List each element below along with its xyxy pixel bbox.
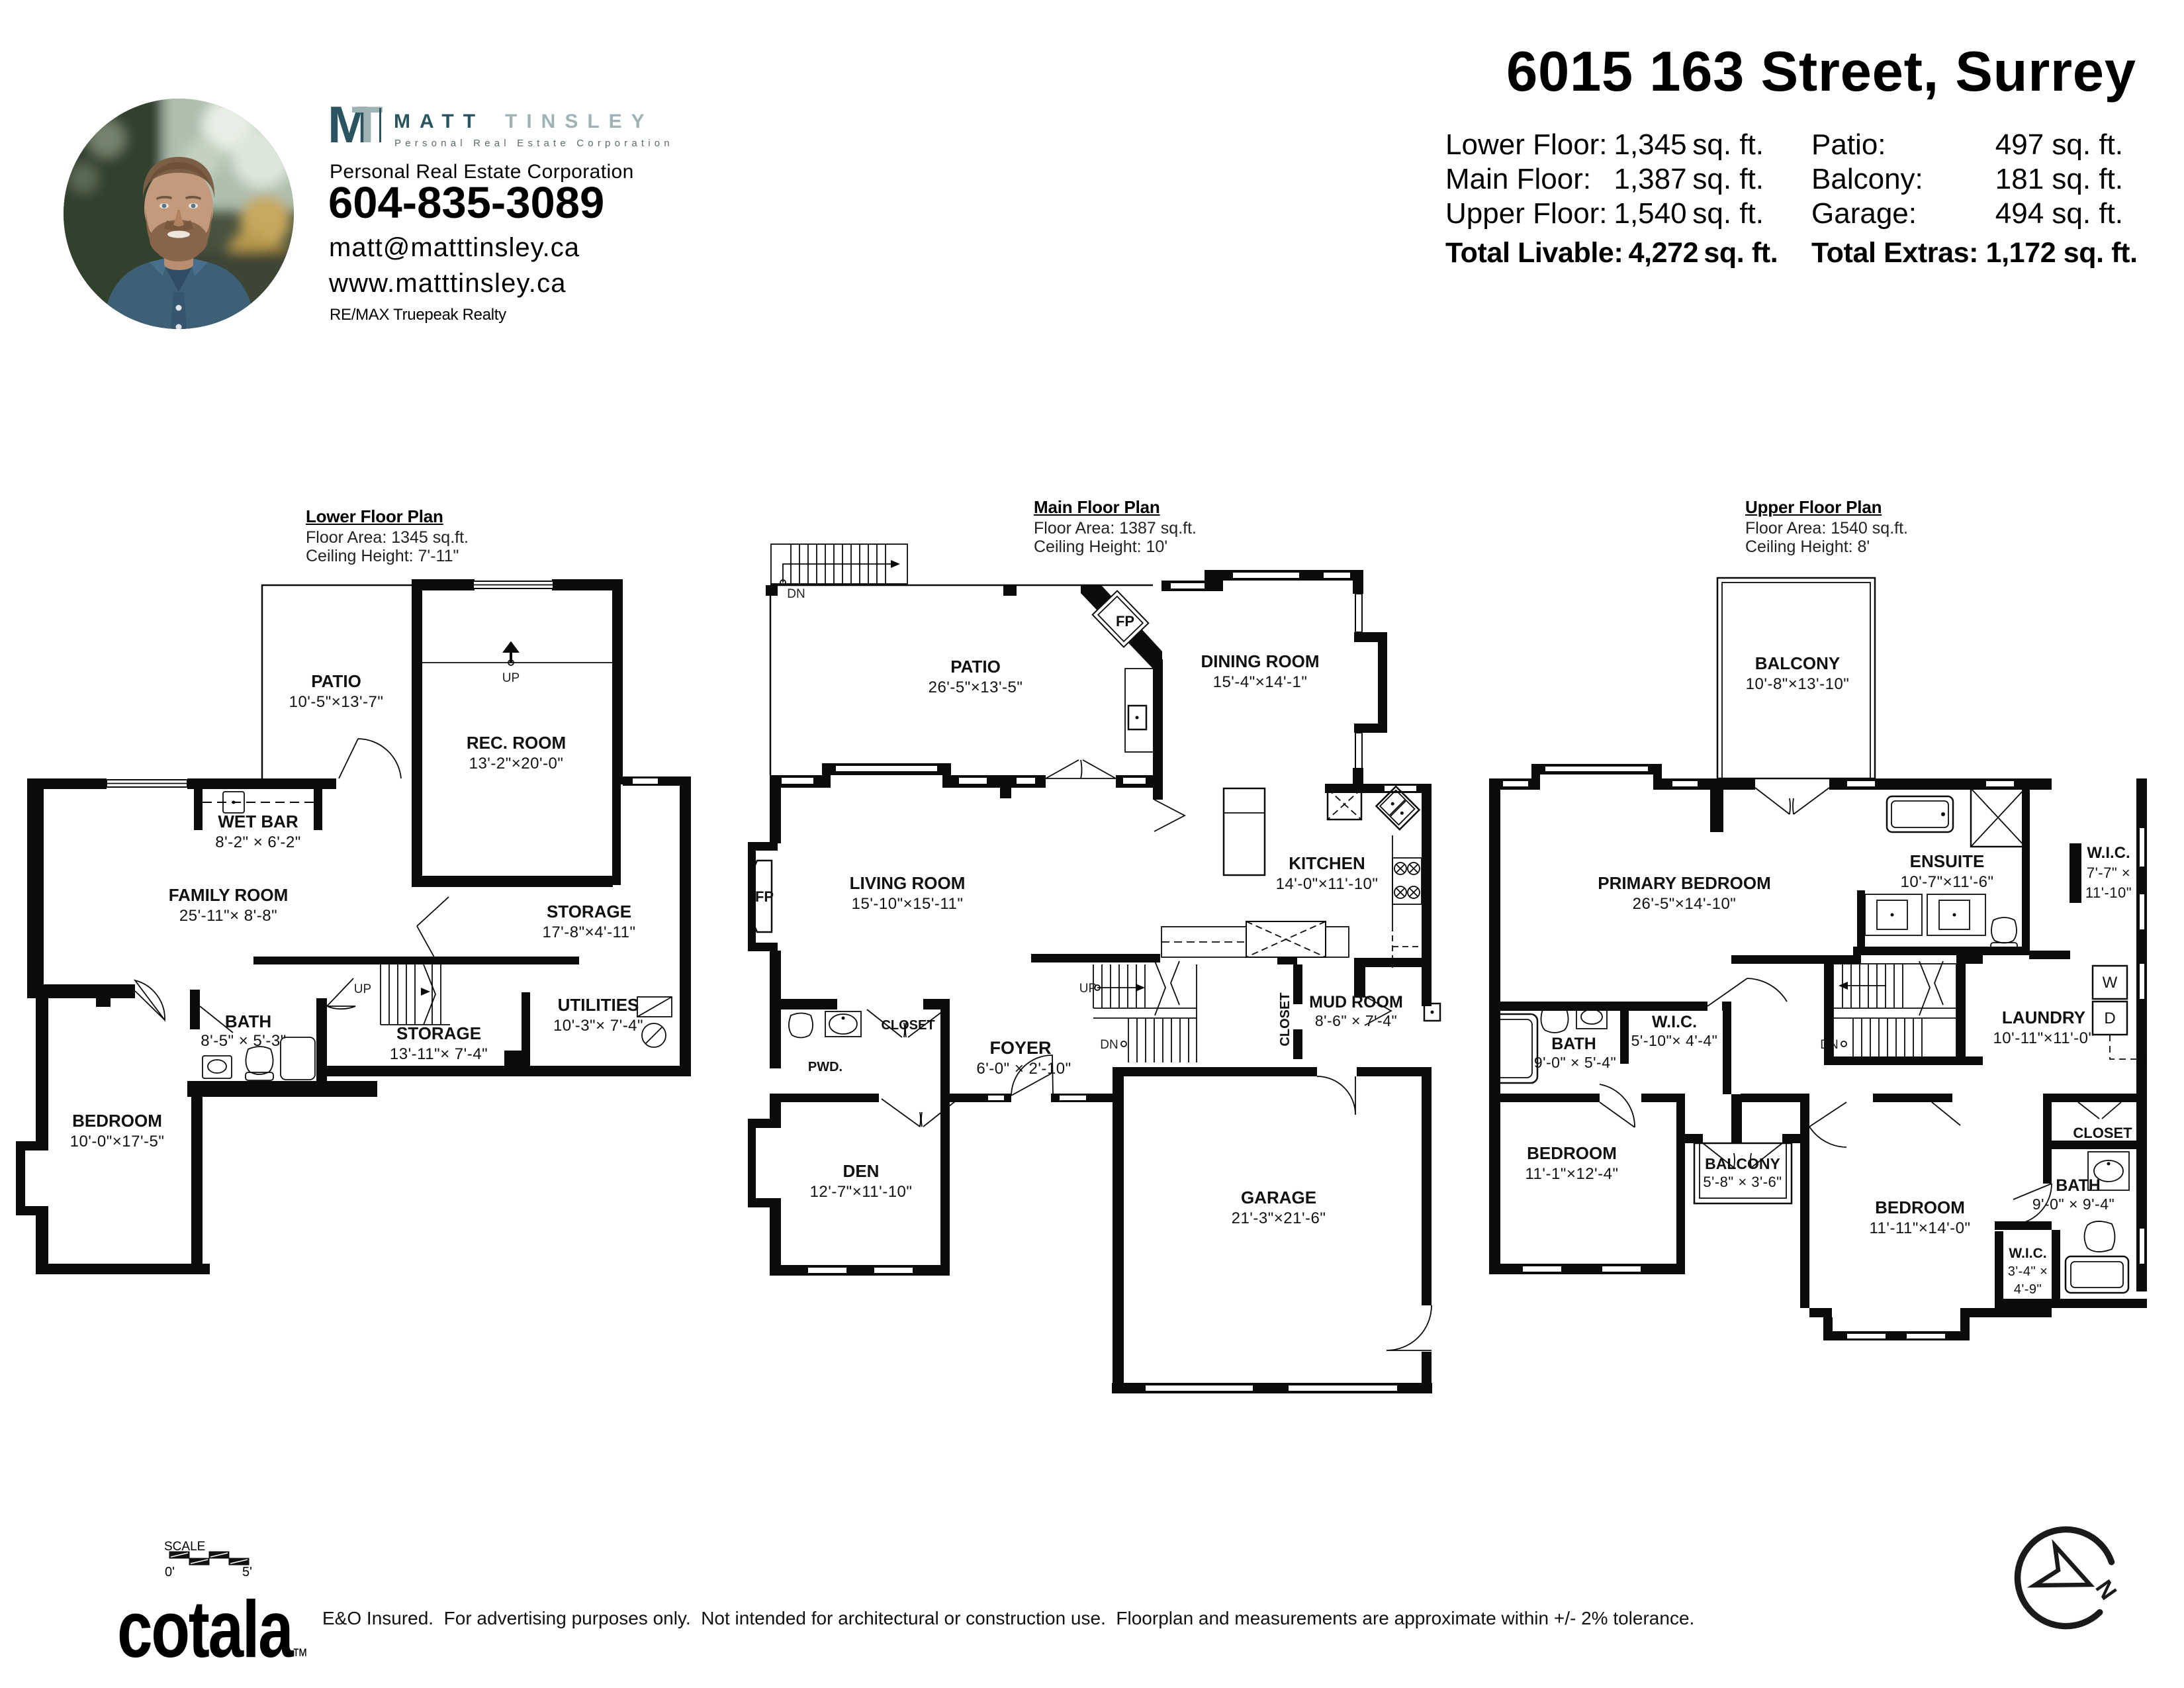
svg-text:BATH: BATH <box>225 1011 271 1031</box>
svg-text:PWD.: PWD. <box>808 1060 842 1074</box>
svg-text:MUD ROOM: MUD ROOM <box>1309 993 1403 1011</box>
svg-text:10'-7"×11'-6": 10'-7"×11'-6" <box>1900 873 1993 891</box>
svg-text:BEDROOM: BEDROOM <box>72 1111 162 1131</box>
svg-text:ENSUITE: ENSUITE <box>1910 851 1985 871</box>
svg-text:11'-10": 11'-10" <box>2085 884 2132 901</box>
svg-text:BATH: BATH <box>1551 1035 1596 1053</box>
svg-text:25'-11"× 8'-8": 25'-11"× 8'-8" <box>179 907 277 925</box>
svg-text:W.I.C.: W.I.C. <box>2009 1246 2046 1261</box>
svg-text:9'-0" × 5'-4": 9'-0" × 5'-4" <box>1534 1054 1616 1071</box>
svg-text:15'-4"×14'-1": 15'-4"×14'-1" <box>1213 673 1308 691</box>
svg-text:UTILITIES: UTILITIES <box>558 995 639 1015</box>
svg-text:CLOSET: CLOSET <box>881 1018 934 1033</box>
svg-text:15'-10"×15'-11": 15'-10"×15'-11" <box>852 895 964 913</box>
svg-text:3'-4" ×: 3'-4" × <box>2008 1264 2048 1279</box>
svg-text:6'-0" × 2'-10": 6'-0" × 2'-10" <box>976 1060 1071 1078</box>
svg-text:BALCONY: BALCONY <box>1755 653 1841 673</box>
svg-text:BEDROOM: BEDROOM <box>1527 1143 1617 1163</box>
svg-text:D: D <box>2104 1009 2115 1027</box>
svg-text:10'-3"× 7'-4": 10'-3"× 7'-4" <box>553 1017 643 1035</box>
svg-text:4'-9": 4'-9" <box>2014 1282 2042 1297</box>
svg-text:FOYER: FOYER <box>989 1038 1051 1058</box>
svg-text:BATH: BATH <box>2056 1176 2101 1195</box>
svg-text:UP: UP <box>354 982 371 996</box>
svg-text:PATIO: PATIO <box>311 671 361 691</box>
svg-text:10'-5"×13'-7": 10'-5"×13'-7" <box>289 693 384 711</box>
svg-text:26'-5"×14'-10": 26'-5"×14'-10" <box>1633 895 1737 913</box>
svg-text:REC. ROOM: REC. ROOM <box>467 733 566 753</box>
svg-text:W: W <box>2103 974 2118 992</box>
svg-text:BEDROOM: BEDROOM <box>1875 1197 1965 1217</box>
svg-text:STORAGE: STORAGE <box>547 902 631 921</box>
svg-text:DN: DN <box>1100 1038 1118 1052</box>
svg-text:8'-5" × 5'-3": 8'-5" × 5'-3" <box>201 1032 286 1050</box>
svg-text:21'-3"×21'-6": 21'-3"×21'-6" <box>1232 1209 1326 1227</box>
svg-text:14'-0"×11'-10": 14'-0"×11'-10" <box>1276 875 1379 893</box>
svg-text:PRIMARY BEDROOM: PRIMARY BEDROOM <box>1598 873 1770 893</box>
svg-text:W.I.C.: W.I.C. <box>2087 844 2130 862</box>
svg-text:CLOSET: CLOSET <box>1278 992 1293 1046</box>
svg-text:17'-8"×4'-11": 17'-8"×4'-11" <box>542 923 635 941</box>
svg-text:FP: FP <box>755 888 774 905</box>
svg-text:FAMILY ROOM: FAMILY ROOM <box>169 885 289 905</box>
svg-text:WET BAR: WET BAR <box>218 812 298 831</box>
svg-text:12'-7"×11'-10": 12'-7"×11'-10" <box>810 1183 913 1201</box>
svg-text:LAUNDRY: LAUNDRY <box>2002 1008 2085 1027</box>
svg-text:W.I.C.: W.I.C. <box>1652 1013 1697 1031</box>
svg-text:5'-10"× 4'-4": 5'-10"× 4'-4" <box>1631 1032 1718 1049</box>
svg-text:UP: UP <box>1079 982 1097 996</box>
svg-text:8'-6" × 7'-4": 8'-6" × 7'-4" <box>1315 1012 1397 1029</box>
svg-text:11'-1"×12'-4": 11'-1"×12'-4" <box>1525 1165 1618 1183</box>
svg-text:9'-0" × 9'-4": 9'-0" × 9'-4" <box>2032 1196 2115 1213</box>
svg-text:CLOSET: CLOSET <box>2073 1125 2132 1141</box>
svg-text:DEN: DEN <box>843 1161 880 1181</box>
svg-text:DN: DN <box>787 587 805 601</box>
svg-text:8'-2" × 6'-2": 8'-2" × 6'-2" <box>215 833 300 851</box>
svg-text:5'-8" × 3'-6": 5'-8" × 3'-6" <box>1703 1174 1782 1190</box>
svg-text:STORAGE: STORAGE <box>396 1023 481 1043</box>
svg-text:10'-8"×13'-10": 10'-8"×13'-10" <box>1746 675 1850 693</box>
svg-text:BALCONY: BALCONY <box>1705 1155 1780 1172</box>
svg-text:KITCHEN: KITCHEN <box>1289 853 1365 873</box>
svg-text:7'-7" ×: 7'-7" × <box>2087 865 2130 881</box>
svg-text:10'-0"×17'-5": 10'-0"×17'-5" <box>70 1133 165 1150</box>
svg-text:N: N <box>2090 1575 2122 1605</box>
svg-text:10'-11"×11'-0": 10'-11"×11'-0" <box>1993 1029 2094 1047</box>
svg-text:DINING ROOM: DINING ROOM <box>1201 651 1319 671</box>
svg-text:13'-11"× 7'-4": 13'-11"× 7'-4" <box>390 1045 488 1063</box>
svg-text:LIVING ROOM: LIVING ROOM <box>850 873 966 893</box>
svg-text:26'-5"×13'-5": 26'-5"×13'-5" <box>929 679 1023 696</box>
svg-text:GARAGE: GARAGE <box>1241 1188 1316 1207</box>
svg-text:13'-2"×20'-0": 13'-2"×20'-0" <box>469 755 564 773</box>
svg-text:UP: UP <box>502 671 520 685</box>
svg-text:PATIO: PATIO <box>950 657 1001 677</box>
svg-text:FP: FP <box>1116 613 1134 630</box>
svg-text:11'-11"×14'-0": 11'-11"×14'-0" <box>1869 1219 1970 1237</box>
